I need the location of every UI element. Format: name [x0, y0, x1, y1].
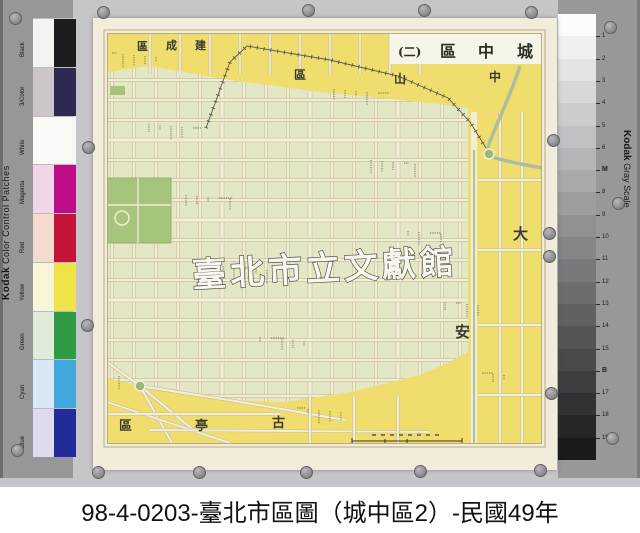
gray-step-12 [558, 282, 596, 305]
gray-tick-label: 1 [602, 33, 605, 39]
kodak-gray-scale-strip: Kodak Gray Scale 123456M89101112131415B1… [558, 0, 640, 478]
magnet [82, 141, 95, 154]
gray-tick [596, 81, 600, 82]
gray-tick [596, 103, 600, 104]
gray-scale-ruler: Kodak Gray Scale 123456M89101112131415B1… [596, 0, 640, 478]
magnet [97, 6, 110, 19]
gray-tick [596, 326, 600, 327]
map-sheet: 城 中 區 (二) 建 成 區 中 山 區 大 安 古 亭 區 [93, 18, 557, 470]
gray-tick [596, 371, 600, 372]
gray-tick-label: 17 [602, 390, 609, 396]
gray-step-2 [558, 59, 596, 82]
gray-tick [596, 148, 600, 149]
small-park [110, 86, 125, 95]
gray-tick [596, 170, 600, 171]
gray-tick [596, 415, 600, 416]
patch-full [54, 68, 76, 116]
color-patch-row-red [33, 213, 76, 262]
patch-full [54, 165, 76, 213]
magnet [300, 466, 313, 479]
gray-step-8 [558, 192, 596, 215]
patch-full [54, 409, 76, 457]
gray-tick-label: 4 [602, 100, 605, 106]
gray-tick-label: 8 [602, 189, 605, 195]
gray-step-13 [558, 304, 596, 327]
magnet [612, 197, 625, 210]
gray-scale-steps [558, 14, 596, 460]
color-strip-brand-label: Kodak Color Control Patches [1, 100, 12, 300]
gray-tick-label: B [602, 368, 607, 374]
magnet [525, 6, 538, 19]
gray-tick [596, 126, 600, 127]
color-patch-row-cyan [33, 359, 76, 408]
gray-tick-label: 12 [602, 279, 609, 285]
roundabout-south [135, 381, 145, 391]
gray-step-19 [558, 438, 596, 461]
gray-tick-label: 2 [602, 56, 605, 62]
magnet [604, 21, 617, 34]
gray-tick [596, 215, 600, 216]
gray-step-10 [558, 237, 596, 260]
magnet [414, 465, 427, 478]
gray-tick-label: 13 [602, 301, 609, 307]
gray-tick-label: 3 [602, 78, 605, 84]
botanical-park [107, 178, 171, 243]
gray-tick-label: 6 [602, 145, 605, 151]
color-patch-row-white [33, 116, 76, 165]
gray-step-6 [558, 148, 596, 171]
color-patch-row-magenta [33, 164, 76, 213]
patch-full [54, 19, 76, 67]
gray-tick-label: 5 [602, 123, 605, 129]
gray-tick-label: 14 [602, 323, 609, 329]
gray-tick [596, 304, 600, 305]
magnet [92, 466, 105, 479]
gray-tick-label: 11 [602, 256, 608, 262]
gray-step-18 [558, 415, 596, 438]
gray-step-9 [558, 215, 596, 238]
gray-step-5 [558, 126, 596, 149]
magnet [193, 466, 206, 479]
caption-text: 98-4-0203-臺北市區圖（城中區2）-民國49年 [81, 493, 558, 528]
patch-full [54, 263, 76, 311]
caption-bar: 98-4-0203-臺北市區圖（城中區2）-民國49年 [0, 487, 640, 533]
district-label-jiancheng: 建 成 區 [137, 38, 210, 53]
magnet [545, 387, 558, 400]
gray-tick-label: 18 [602, 412, 609, 418]
magnet [543, 250, 556, 263]
patch-tint [33, 165, 54, 213]
gray-tick [596, 36, 600, 37]
gray-step-16 [558, 371, 596, 394]
patch-full [54, 312, 76, 360]
gray-tick [596, 438, 600, 439]
gray-tick-label: 10 [602, 234, 609, 240]
gray-tick [596, 349, 600, 350]
color-patch-row-yellow [33, 262, 76, 311]
patch-tint [33, 409, 54, 457]
gray-step-3 [558, 81, 596, 104]
gray-tick [596, 259, 600, 260]
gray-step-1 [558, 36, 596, 59]
magnet [418, 4, 431, 17]
color-patch-row-green [33, 311, 76, 360]
gray-step-11 [558, 259, 596, 282]
gray-tick [596, 237, 600, 238]
gray-tick [596, 192, 600, 193]
gray-step-4 [558, 103, 596, 126]
magnet [543, 227, 556, 240]
color-patch-row-black [33, 18, 76, 67]
patch-tint [33, 19, 54, 67]
gray-step-14 [558, 326, 596, 349]
patch-full [54, 214, 76, 262]
gray-step-17 [558, 393, 596, 416]
magnet [547, 134, 560, 147]
gray-tick [596, 59, 600, 60]
map-drawing: 城 中 區 (二) 建 成 區 中 山 區 大 安 古 亭 區 [93, 18, 557, 470]
gray-step-15 [558, 349, 596, 372]
magnet [302, 4, 315, 17]
roundabout-pond [484, 149, 494, 159]
gray-step-7 [558, 170, 596, 193]
patch-tint [33, 214, 54, 262]
magnet [534, 464, 547, 477]
patch-tint [33, 117, 54, 165]
patch-tint [33, 68, 54, 116]
color-patch-row-blue [33, 408, 76, 457]
patch-full [54, 360, 76, 408]
gray-tick-label: M [602, 167, 608, 173]
gray-step-0 [558, 14, 596, 37]
magnet [11, 444, 24, 457]
patch-tint [33, 263, 54, 311]
patch-tint [33, 312, 54, 360]
patch-tint [33, 360, 54, 408]
magnet [9, 12, 22, 25]
gray-tick [596, 282, 600, 283]
magnet [81, 319, 94, 332]
gray-tick-label: 15 [602, 346, 609, 352]
gray-tick-label: 9 [602, 212, 605, 218]
color-patch-row-3/color [33, 67, 76, 116]
patch-label: Blue [20, 388, 26, 448]
kodak-color-control-strip: Kodak Color Control Patches Black3/Color… [0, 0, 73, 478]
magnet [606, 432, 619, 445]
archival-scan-stage: { "caption": "98-4-0203-臺北市區圖（城中區2）-民國49… [0, 0, 640, 533]
patch-full [54, 117, 76, 165]
gray-tick [596, 393, 600, 394]
